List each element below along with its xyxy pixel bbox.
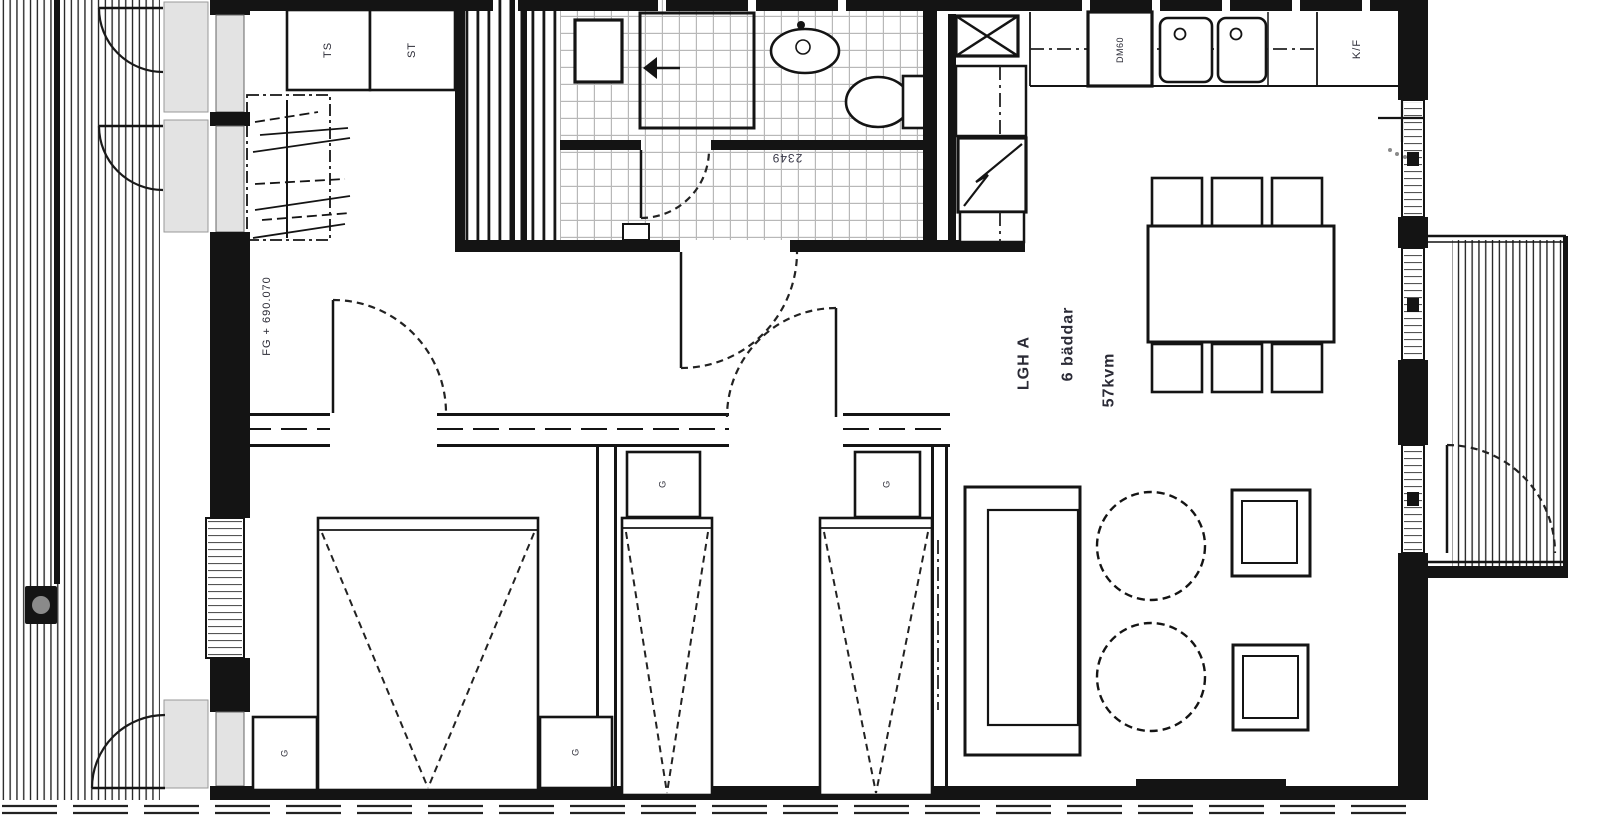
wardrobe-label: G	[658, 480, 669, 488]
glazing-panel	[164, 2, 208, 112]
left-deck	[2, 0, 208, 800]
apartment-id: LGH A	[1016, 336, 1033, 390]
dimension-label: 2349	[772, 151, 803, 165]
door-glass	[216, 712, 244, 786]
wardrobe-label: G	[280, 749, 291, 757]
entry-sauna-wall	[455, 0, 465, 252]
glazing-panel	[164, 120, 208, 232]
dining-chair	[1272, 344, 1322, 392]
dining-chair	[1152, 344, 1202, 392]
apartment-area: 57kvm	[1101, 353, 1118, 408]
bedroom1: G G	[253, 518, 612, 790]
dining-chair	[1272, 178, 1322, 226]
bedroom-window-rungs	[208, 520, 242, 656]
dining-table	[1148, 226, 1334, 342]
left-exterior-wall	[206, 0, 250, 800]
bathroom-door-swing	[681, 252, 797, 368]
marker-smudge	[1395, 152, 1399, 156]
dining-chair	[1152, 178, 1202, 226]
bathroom-south-wall-left	[455, 240, 680, 252]
marker-smudge	[1388, 148, 1392, 152]
deck-boards	[2, 0, 160, 800]
dishwasher-label: DM60	[1115, 37, 1125, 63]
dining-chair	[1212, 178, 1262, 226]
bedroom1-door-swing	[333, 300, 446, 413]
dining-chair	[1212, 344, 1262, 392]
bedroom-livingroom-wall	[931, 444, 948, 786]
floor-plan-drawing: DM60 K/F TS ST FG + 690.070 2349	[0, 0, 1600, 824]
single-bed-right	[820, 518, 932, 795]
washbasin	[771, 29, 839, 73]
bedroom2: G G	[622, 452, 932, 795]
deck-drain-circle	[32, 596, 50, 614]
glazing-panel	[164, 700, 208, 788]
sauna-board-heavy	[510, 0, 515, 240]
sink-bowl-right	[1218, 18, 1266, 82]
floor-level-label: FG + 690.070	[261, 276, 273, 356]
bedroom-north-wall	[245, 413, 950, 447]
closet-ts-label: TS	[322, 42, 334, 58]
toilet-bowl	[846, 77, 910, 127]
wardrobe-label: G	[882, 480, 893, 488]
marker-smudge	[1403, 155, 1407, 159]
entry-hall: TS ST FG + 690.070	[247, 10, 455, 356]
fridge-freezer-label: K/F	[1351, 39, 1363, 59]
coat-rack	[247, 95, 350, 240]
shaft-box	[956, 66, 1026, 136]
living-room	[965, 487, 1310, 755]
window-glass	[216, 15, 244, 112]
terrace-right-edge	[1563, 236, 1568, 578]
sofa	[965, 487, 1080, 755]
sauna-board-heavy	[522, 0, 527, 240]
window-glass	[216, 126, 244, 232]
apartment-beds: 6 bäddar	[1060, 307, 1077, 382]
shower-partition-wall-right	[711, 140, 925, 150]
bedroom2-door-swing	[727, 308, 836, 417]
round-table	[1097, 492, 1205, 600]
deck-joint-line	[54, 0, 60, 584]
single-bed-left	[622, 518, 712, 795]
floor-plan-canvas: DM60 K/F TS ST FG + 690.070 2349	[0, 0, 1600, 824]
washing-machine	[575, 20, 622, 82]
sink-tap-right	[1231, 29, 1242, 40]
bathroom-east-wall	[923, 0, 937, 252]
apartment-label: LGH A 6 bäddar 57kvm	[1016, 307, 1118, 408]
double-bed	[318, 518, 538, 790]
wardrobe-label: G	[571, 748, 582, 756]
kitchen: DM60 K/F	[1030, 12, 1398, 86]
right-terrace	[1428, 236, 1568, 578]
round-table	[1097, 623, 1205, 731]
bottom-wall-accent	[1136, 779, 1286, 788]
sink-tap-left	[1175, 29, 1186, 40]
sink-bowl-left	[1160, 18, 1212, 82]
door-threshold	[623, 224, 649, 240]
closet-st-label: ST	[406, 42, 418, 58]
washbasin-tap	[797, 21, 805, 29]
shaft-box-low	[960, 212, 1024, 242]
dining-area	[1148, 178, 1334, 392]
service-shafts	[948, 14, 1026, 252]
terrace-bottom-band	[1428, 566, 1566, 578]
shower-partition-wall-left	[560, 140, 641, 150]
